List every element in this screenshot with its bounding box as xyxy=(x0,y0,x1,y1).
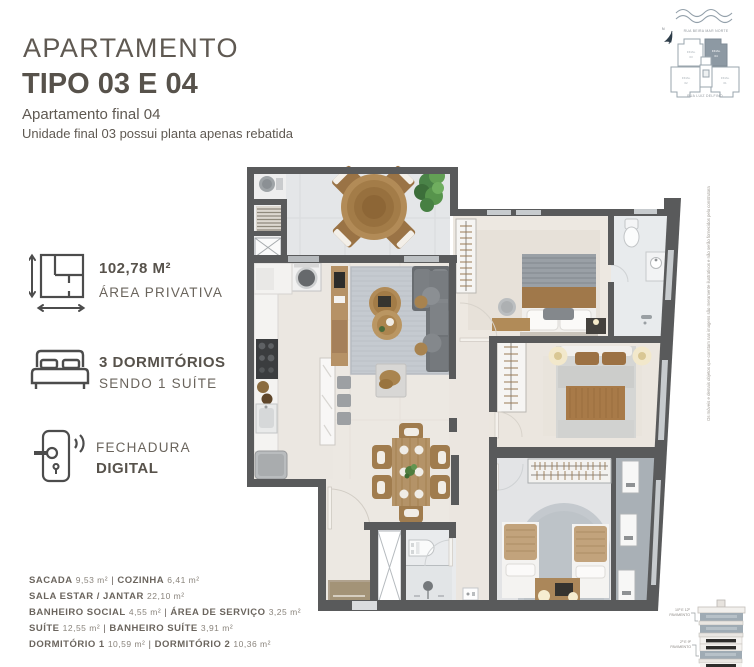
svg-text:PAVIMENTO: PAVIMENTO xyxy=(669,613,690,617)
svg-text:04: 04 xyxy=(714,54,718,58)
svg-text:PAVIMENTO: PAVIMENTO xyxy=(670,645,691,649)
svg-text:03: 03 xyxy=(689,55,693,59)
svg-text:10º E 12º: 10º E 12º xyxy=(675,608,691,612)
svg-text:N: N xyxy=(662,27,665,31)
svg-text:RUA BEIRA MAR NORTE: RUA BEIRA MAR NORTE xyxy=(684,29,729,33)
svg-text:FINAL: FINAL xyxy=(687,50,696,54)
svg-text:02: 02 xyxy=(684,81,688,85)
svg-text:FINAL: FINAL xyxy=(721,76,730,80)
svg-text:2º E 9º: 2º E 9º xyxy=(680,640,692,644)
svg-text:01: 01 xyxy=(723,81,727,85)
svg-text:RUA LUIZ DELFINO: RUA LUIZ DELFINO xyxy=(687,94,723,98)
svg-text:FINAL: FINAL xyxy=(712,49,721,53)
svg-text:FINAL: FINAL xyxy=(682,76,691,80)
